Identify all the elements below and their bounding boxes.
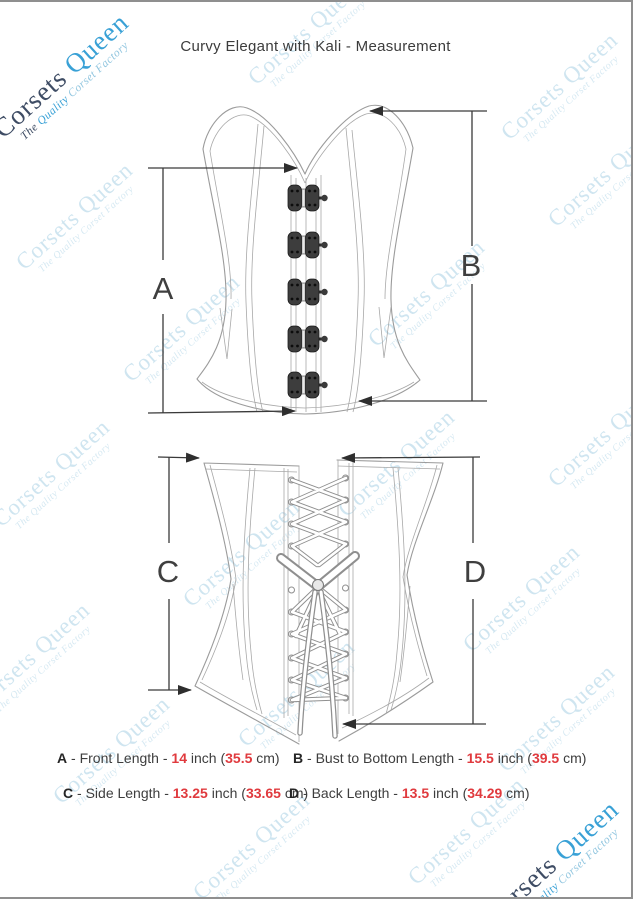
legend-separator: - — [389, 785, 401, 801]
page-title: Curvy Elegant with Kali - Measurement — [0, 38, 631, 55]
watermark-brand: Corsets Queen — [543, 374, 633, 492]
legend-cm-value: 39.5 — [532, 750, 559, 766]
legend-letter: D — [289, 785, 299, 801]
watermark-tagline: The Quality Corset Factory — [0, 624, 93, 715]
legend-item-b: B - Bust to Bottom Length - 15.5 inch (3… — [293, 750, 586, 766]
watermark-tagline: The Quality Corset Factory — [37, 184, 136, 275]
legend-measure-name: Back Length — [312, 785, 390, 801]
legend-inch-unit: inch ( — [208, 785, 246, 801]
watermark: Corsets QueenThe Quality Corset Factory — [0, 573, 125, 746]
front-corset-outline — [197, 105, 420, 414]
measurement-line-a: A — [148, 168, 297, 413]
legend-item-a: A - Front Length - 14 inch (35.5 cm) — [57, 750, 280, 766]
legend-cm-unit: cm) — [252, 750, 279, 766]
watermark-brand: Corsets Queen — [11, 157, 138, 275]
watermark-tagline: The Quality Corset Factory — [14, 441, 113, 532]
busk-clasps — [288, 185, 328, 398]
measure-label-b: B — [461, 248, 482, 283]
watermark-brand: Corsets Queen — [477, 794, 625, 899]
back-view-diagram: C D — [140, 447, 500, 747]
watermark-tagline: The Quality Corset Factory — [569, 401, 633, 492]
front-view-diagram: A B — [140, 87, 500, 432]
measurement-line-c: C — [148, 457, 199, 690]
legend-cm-value: 34.29 — [467, 785, 502, 801]
legend-inch-value: 15.5 — [467, 750, 494, 766]
legend-cm-unit: cm) — [502, 785, 529, 801]
legend-measure-name: Bust to Bottom Length — [316, 750, 455, 766]
watermark-tagline: The Quality Corset Factory — [429, 799, 528, 890]
measure-label-a: A — [153, 271, 174, 306]
measure-label-d: D — [464, 554, 486, 589]
legend-separator: - — [299, 785, 311, 801]
legend-separator: - — [73, 785, 85, 801]
watermark-brand: Corsets Queen — [0, 597, 95, 715]
legend-letter: A — [57, 750, 67, 766]
watermark-tagline: The Quality Corset Factory — [214, 814, 313, 899]
watermark-brand: Corsets Queen — [188, 787, 315, 899]
legend-inch-value: 13.25 — [173, 785, 208, 801]
legend-separator: - — [454, 750, 466, 766]
legend-letter: C — [63, 785, 73, 801]
watermark-tagline: The Quality Corset Factory — [508, 826, 620, 899]
legend-item-d: D - Back Length - 13.5 inch (34.29 cm) — [289, 785, 530, 801]
legend-measure-name: Side Length — [86, 785, 161, 801]
watermark: Corsets QueenThe Quality Corset Factory — [520, 90, 633, 263]
legend-cm-value: 35.5 — [225, 750, 252, 766]
legend-cm-value: 33.65 — [246, 785, 281, 801]
legend-inch-unit: inch ( — [187, 750, 225, 766]
legend-measure-name: Front Length — [80, 750, 159, 766]
watermark-tagline: The Quality Corset Factory — [522, 54, 621, 145]
legend-separator: - — [303, 750, 315, 766]
watermark: Corsets QueenThe Quality Corset Factory — [0, 390, 145, 563]
measurement-line-d: D — [342, 457, 486, 724]
watermark-brand: Corsets Queen — [0, 414, 115, 532]
legend-separator: - — [159, 750, 171, 766]
legend-item-c: C - Side Length - 13.25 inch (33.65 cm) — [63, 785, 308, 801]
watermark: Corsets QueenThe Quality Corset Factory — [380, 748, 560, 899]
back-corset-outline — [195, 460, 443, 744]
watermark-tagline: The Quality Corset Factory — [569, 141, 633, 232]
legend-inch-value: 13.5 — [402, 785, 429, 801]
legend-cm-unit: cm) — [559, 750, 586, 766]
watermark-brand: Corsets Queen — [0, 7, 135, 145]
legend-inch-unit: inch ( — [429, 785, 467, 801]
watermark: Corsets QueenThe Quality Corset Factory — [165, 763, 345, 899]
legend-separator: - — [67, 750, 79, 766]
watermark: Corsets QueenThe Quality Corset Factory — [520, 350, 633, 523]
legend-inch-value: 14 — [171, 750, 187, 766]
measurement-line-b: B — [359, 111, 487, 401]
measure-label-c: C — [157, 554, 179, 589]
legend-separator: - — [160, 785, 172, 801]
legend-letter: B — [293, 750, 303, 766]
legend-inch-unit: inch ( — [494, 750, 532, 766]
measurement-sheet: Corsets QueenThe Quality Corset Factory … — [0, 0, 633, 899]
watermark-brand: Corsets Queen — [543, 114, 633, 232]
